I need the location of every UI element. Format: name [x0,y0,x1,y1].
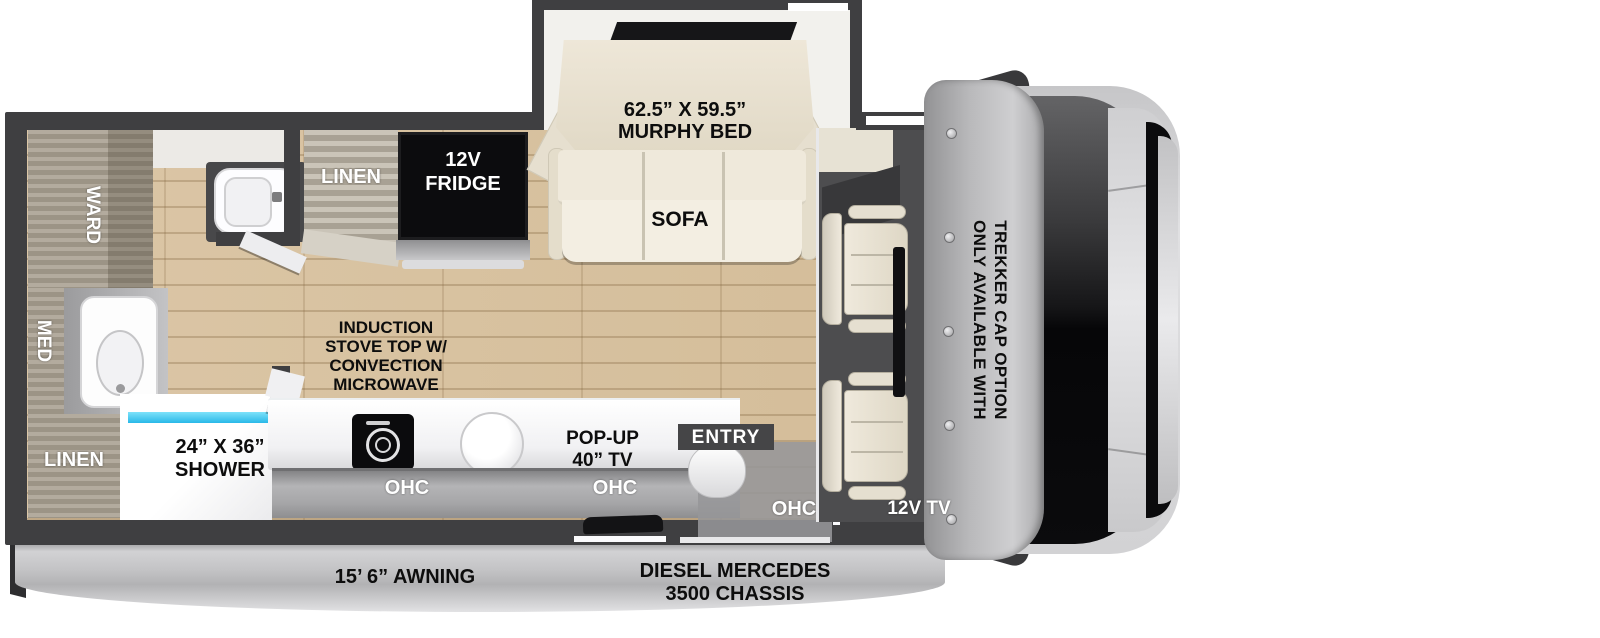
kitchen-sink [460,412,524,476]
trekker-cap-note: ONLY AVAILABLE WITH TREKKER CAP OPTION [968,150,1012,490]
fridge-label-line1: 12V [398,148,528,172]
ohc-label-right: OHC [766,498,822,521]
shower-glass [128,412,268,423]
chassis-label-line2: 3500 CHASSIS [630,583,840,606]
bath-linen-label: LINEN [28,449,120,472]
cooktop-vent [366,421,390,425]
seat-backrest [822,213,842,325]
kitchen-linen-label: LINEN [306,166,396,189]
entry-label: ENTRY [678,427,774,449]
shower-label-size: 24” X 36” [160,436,280,459]
sofa-seam [722,152,725,260]
induction-cooktop [352,414,414,470]
bath-faucet-icon [116,384,125,393]
wardrobe-label: WARD [79,175,103,255]
popup-tv-label-line1: POP-UP [545,428,660,450]
fridge-label-line2: FRIDGE [398,172,528,196]
sofa-label: SOFA [630,208,730,232]
rivet-icon [944,232,955,243]
entry-step-strip [680,537,830,543]
murphy-bed-label-size: 62.5” X 59.5” [575,99,795,121]
slideout-window-sill [788,3,848,11]
awning-label: 15’ 6” AWNING [320,566,490,589]
stove-label-line2: STOVE TOP W/ [296,337,476,356]
rivet-icon [944,420,955,431]
bath-wall-upper [284,112,300,234]
seat-armrest [848,205,906,219]
ohc-label-left: OHC [372,477,442,500]
cab-overhead-cabinet [819,128,893,172]
med-label: MED [30,301,54,381]
fridge-base [396,240,530,260]
stove-label-line1: INDUCTION [296,318,476,337]
wardrobe-cabinet-side [108,130,153,288]
stove-label-line3: CONVECTION [296,356,476,375]
rivet-icon [943,326,954,337]
trekker-note-line2: TREKKER CAP OPTION [990,150,1011,490]
tv-12v-label: 12V TV [882,498,956,520]
shower-label-name: SHOWER [160,459,280,482]
rv-floorplan: 15’ 6” AWNING DIESEL MERCEDES 3500 CHASS… [0,0,1600,638]
ohc-label-center: OHC [580,477,650,500]
chassis-label-line1: DIESEL MERCEDES [630,560,840,583]
overhead-cabinet-band [272,468,740,518]
front-bumper-edge [1158,136,1178,504]
toilet-flush-icon [272,192,282,202]
exterior-tv-bar [583,515,664,535]
seat-cushion [844,390,908,482]
sofa-seam [642,152,645,260]
murphy-bed-label-name: MURPHY BED [575,121,795,143]
fridge-base-trim [402,260,524,269]
trekker-note-line1: ONLY AVAILABLE WITH [969,150,990,490]
seat-backrest [822,380,842,492]
sofa-back [558,150,806,205]
cab-12v-tv [893,247,905,397]
exterior-trim-strip [574,536,666,542]
rivet-icon [946,128,957,139]
stove-label-line4: MICROWAVE [296,375,476,394]
entry-door [688,444,746,498]
